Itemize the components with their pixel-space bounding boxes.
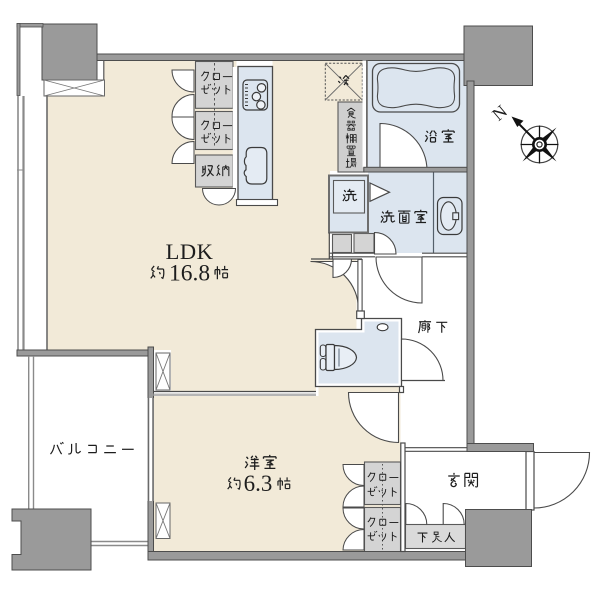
svg-text:6.3: 6.3 [244,471,273,496]
svg-text:16.8: 16.8 [169,261,210,287]
